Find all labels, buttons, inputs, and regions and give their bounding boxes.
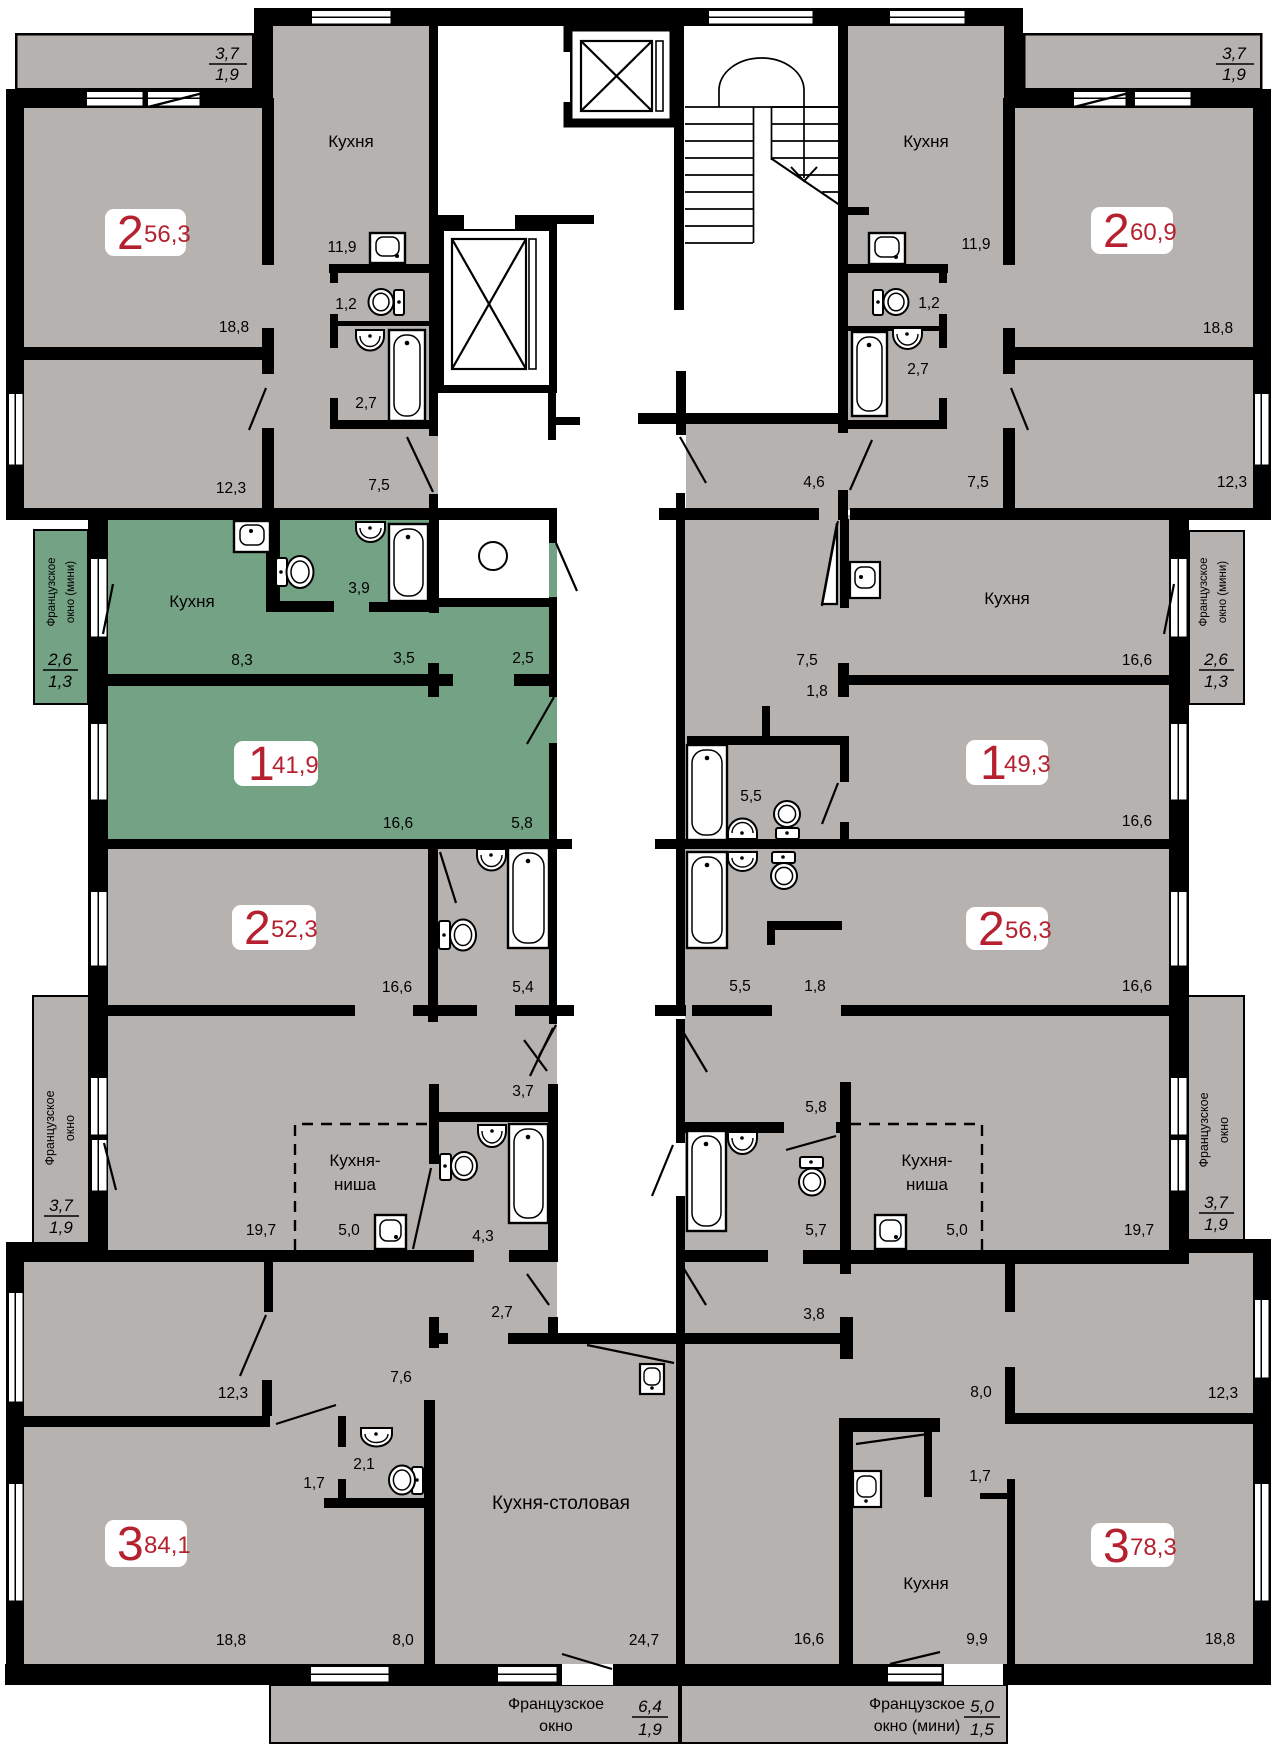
svg-text:Французское: Французское [1198,557,1210,626]
svg-text:2: 2 [1103,205,1130,258]
svg-text:Французское: Французское [43,1090,57,1165]
svg-text:18,8: 18,8 [1203,320,1233,337]
svg-text:16,6: 16,6 [1122,652,1152,669]
svg-text:Кухня: Кухня [169,592,215,611]
svg-text:84,1: 84,1 [144,1532,191,1559]
svg-text:7,6: 7,6 [390,1369,412,1386]
svg-text:11,9: 11,9 [327,239,356,256]
svg-text:24,7: 24,7 [629,1632,659,1649]
svg-text:7,5: 7,5 [967,474,989,491]
svg-text:16,6: 16,6 [794,1631,824,1648]
svg-text:1,8: 1,8 [806,683,828,700]
svg-text:ниша: ниша [906,1175,949,1194]
svg-text:16,6: 16,6 [1122,813,1152,830]
svg-text:1,9: 1,9 [1222,65,1246,84]
svg-text:3: 3 [1103,1520,1130,1573]
svg-text:Французское: Французское [869,1696,965,1713]
svg-text:5,5: 5,5 [729,978,751,995]
svg-text:2: 2 [117,207,144,260]
svg-text:1,9: 1,9 [215,65,239,84]
svg-text:Кухня-: Кухня- [901,1151,952,1170]
svg-text:окно: окно [539,1718,573,1735]
svg-text:1,7: 1,7 [969,1468,991,1485]
svg-text:3,5: 3,5 [393,650,415,667]
svg-text:5,4: 5,4 [512,979,534,996]
svg-text:12,3: 12,3 [1217,474,1247,491]
svg-text:Кухня: Кухня [903,132,949,151]
svg-text:4,6: 4,6 [803,474,825,491]
svg-text:41,9: 41,9 [272,752,319,779]
svg-text:Кухня-: Кухня- [329,1151,380,1170]
svg-text:18,8: 18,8 [216,1632,246,1649]
svg-text:5,0: 5,0 [946,1222,968,1239]
svg-text:3: 3 [117,1518,144,1571]
svg-text:Французское: Французское [508,1696,604,1713]
svg-text:5,8: 5,8 [805,1099,827,1116]
svg-text:3,9: 3,9 [348,580,370,597]
svg-text:2,7: 2,7 [907,361,929,378]
svg-text:12,3: 12,3 [216,480,246,497]
svg-text:3,7: 3,7 [1222,44,1246,63]
svg-text:3,8: 3,8 [803,1306,825,1323]
svg-text:Французское: Французское [1197,1092,1211,1167]
svg-text:1,9: 1,9 [49,1218,73,1237]
svg-text:окно: окно [1217,1117,1231,1143]
svg-text:7,5: 7,5 [368,477,390,494]
svg-text:56,3: 56,3 [1005,917,1052,944]
svg-text:8,0: 8,0 [970,1384,992,1401]
svg-text:2,7: 2,7 [355,395,377,412]
svg-text:12,3: 12,3 [218,1385,248,1402]
svg-text:Кухня: Кухня [984,589,1030,608]
svg-text:4,3: 4,3 [472,1228,494,1245]
svg-text:Кухня-столовая: Кухня-столовая [492,1493,630,1514]
svg-text:1: 1 [248,738,275,791]
svg-text:1,2: 1,2 [335,296,357,313]
svg-text:Французское: Французское [46,557,58,626]
svg-text:52,3: 52,3 [271,916,318,943]
svg-text:18,8: 18,8 [1205,1631,1235,1648]
svg-text:19,7: 19,7 [1124,1222,1154,1239]
svg-text:1,3: 1,3 [48,672,72,691]
svg-text:3,7: 3,7 [49,1196,73,1215]
svg-text:1: 1 [980,737,1007,790]
svg-text:ниша: ниша [334,1175,377,1194]
svg-text:6,4: 6,4 [638,1697,662,1716]
svg-text:2,6: 2,6 [47,650,72,669]
svg-text:1,9: 1,9 [638,1720,662,1739]
svg-text:2,5: 2,5 [512,650,534,667]
svg-text:18,8: 18,8 [219,319,249,336]
svg-text:1,7: 1,7 [303,1475,325,1492]
svg-text:окно (мини): окно (мини) [1217,561,1229,623]
svg-text:Кухня: Кухня [903,1574,949,1593]
svg-text:8,3: 8,3 [231,652,253,669]
svg-text:окно (мини): окно (мини) [874,1718,960,1735]
svg-text:5,0: 5,0 [338,1222,360,1239]
svg-text:5,7: 5,7 [805,1222,827,1239]
svg-text:5,0: 5,0 [970,1697,994,1716]
svg-text:5,5: 5,5 [740,788,762,805]
svg-text:2,7: 2,7 [491,1304,513,1321]
svg-text:1,8: 1,8 [804,978,826,995]
svg-text:1,2: 1,2 [918,295,940,312]
svg-text:1,9: 1,9 [1204,1215,1228,1234]
svg-text:12,3: 12,3 [1208,1385,1238,1402]
svg-text:8,0: 8,0 [392,1632,414,1649]
svg-text:2,6: 2,6 [1203,650,1228,669]
svg-text:3,7: 3,7 [512,1083,534,1100]
svg-text:окно: окно [63,1115,77,1141]
svg-text:7,5: 7,5 [796,652,818,669]
svg-text:78,3: 78,3 [1130,1534,1177,1561]
svg-text:2: 2 [978,903,1005,956]
svg-text:11,9: 11,9 [961,236,990,253]
svg-text:49,3: 49,3 [1004,751,1051,778]
svg-text:56,3: 56,3 [144,221,191,248]
svg-text:16,6: 16,6 [382,979,412,996]
svg-text:1,5: 1,5 [970,1720,994,1739]
svg-text:19,7: 19,7 [246,1222,276,1239]
svg-text:3,7: 3,7 [215,44,239,63]
svg-text:2: 2 [244,902,271,955]
svg-text:окно (мини): окно (мини) [65,561,77,623]
svg-text:2,1: 2,1 [353,1456,375,1473]
svg-text:5,8: 5,8 [511,815,533,832]
svg-text:Кухня: Кухня [328,132,374,151]
svg-text:3,7: 3,7 [1204,1193,1228,1212]
svg-text:16,6: 16,6 [1122,978,1152,995]
svg-text:60,9: 60,9 [1130,219,1177,246]
svg-text:9,9: 9,9 [966,1631,988,1648]
svg-text:1,3: 1,3 [1204,672,1228,691]
svg-text:16,6: 16,6 [383,815,413,832]
